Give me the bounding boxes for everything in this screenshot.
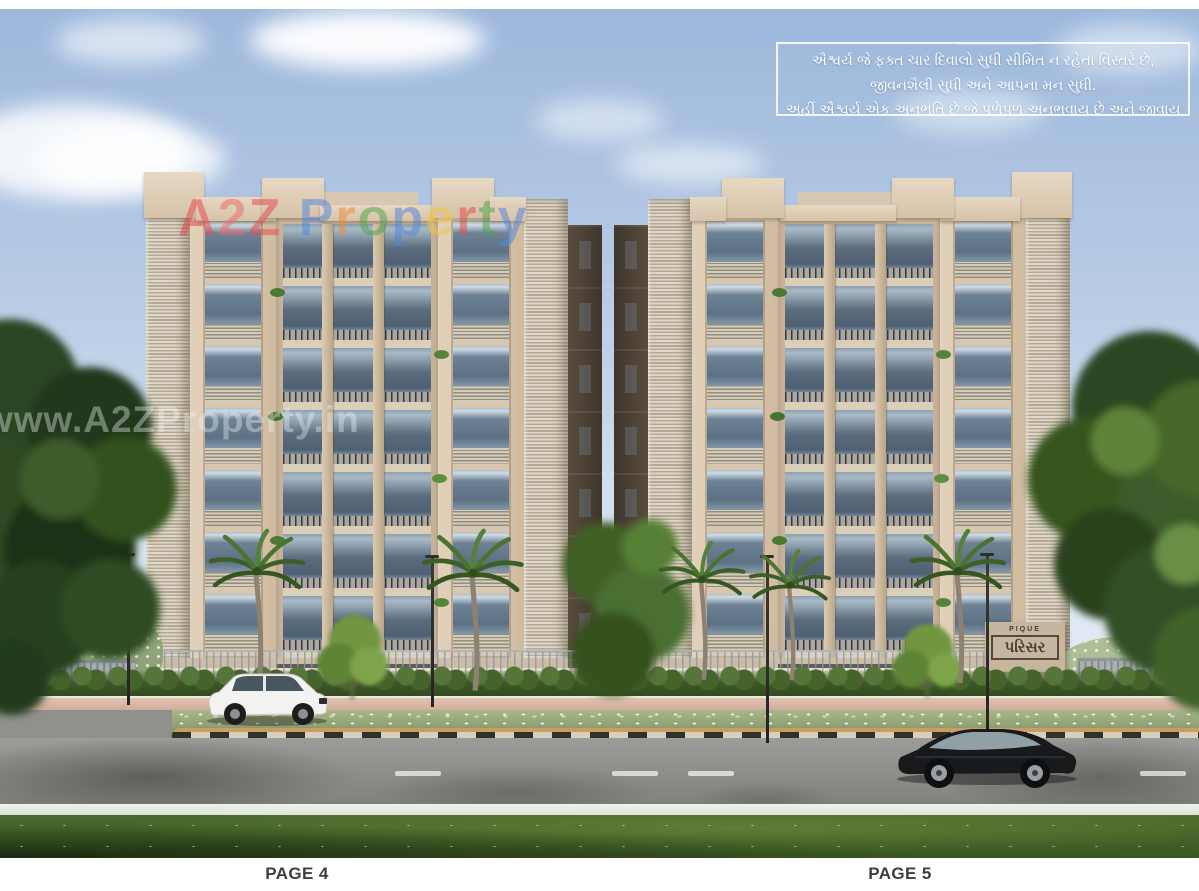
- street-light-pole: [431, 557, 434, 707]
- quote-line-3: અહીં ઐશ્વર્ય એક અનુભૂતિ છે જે પળેપળ અનુભ…: [778, 98, 1188, 116]
- site-watermark: www.A2ZProperty.in: [0, 399, 360, 441]
- cloud: [535, 99, 665, 141]
- lane-marking: [1140, 771, 1186, 776]
- wing-window-column: [955, 222, 1011, 656]
- facade-mullion: [875, 224, 886, 658]
- street-light-pole: [766, 557, 769, 743]
- quote-box: ઐશ્વર્ય જે ફક્ત ચાર દિવાલો સુધી સીમિત ન …: [776, 42, 1190, 116]
- tower-wing: [438, 197, 524, 658]
- parapet: [892, 178, 954, 218]
- louvre-strip: [1026, 190, 1070, 697]
- street-light-pole: [127, 555, 130, 705]
- lane-marking: [688, 771, 734, 776]
- balcony-core: [778, 205, 940, 658]
- quote-line-1: ઐશ્વર્ય જે ફક્ત ચાર દિવાલો સુધી સીમિત ન …: [778, 49, 1188, 74]
- cloud: [250, 11, 485, 69]
- street-light-head: [760, 555, 774, 558]
- quote-border-gap: [957, 42, 1035, 45]
- distant-building: [1118, 491, 1154, 601]
- balcony-plants: [772, 288, 787, 297]
- tower-side-face: [614, 225, 648, 697]
- lawn: [0, 815, 1199, 858]
- parapet: [780, 205, 896, 221]
- street-light-head: [425, 555, 439, 558]
- parapet: [722, 178, 784, 218]
- facade-mullion: [824, 224, 835, 658]
- wing-window-column: [707, 222, 763, 656]
- lane-marking: [612, 771, 658, 776]
- balcony-glass-wall: [283, 224, 431, 658]
- signboard-name-text: પરિસર: [991, 635, 1059, 660]
- brochure-photo: PIQUE પરિસર: [0, 9, 1199, 858]
- tower-side-face: [568, 225, 602, 697]
- parapet: [690, 197, 726, 221]
- wing-window-column: [453, 222, 509, 656]
- louvre-strip: [648, 199, 692, 697]
- street-light-head: [980, 553, 994, 556]
- street-light-pole: [986, 555, 989, 743]
- street-light-head: [121, 553, 135, 556]
- cloud: [55, 19, 205, 64]
- page-label-left: PAGE 4: [197, 864, 397, 884]
- quote-line-2: જીવનશૈલી સુધી અને આપના મન સુધી.: [778, 74, 1188, 99]
- louvre-strip: [146, 190, 190, 697]
- balcony-plants: [270, 288, 285, 297]
- tower-wing: [940, 197, 1026, 658]
- louvre-strip: [524, 199, 568, 697]
- brand-watermark: A2Z Property: [178, 188, 529, 248]
- facade-mullion: [322, 224, 333, 658]
- lane-marking: [395, 771, 441, 776]
- signboard-brand-text: PIQUE: [985, 626, 1065, 633]
- facade-mullion: [373, 224, 384, 658]
- balcony-glass-wall: [785, 224, 933, 658]
- parapet: [1012, 172, 1072, 218]
- page-label-right: PAGE 5: [800, 864, 1000, 884]
- tower-right: [648, 172, 1070, 697]
